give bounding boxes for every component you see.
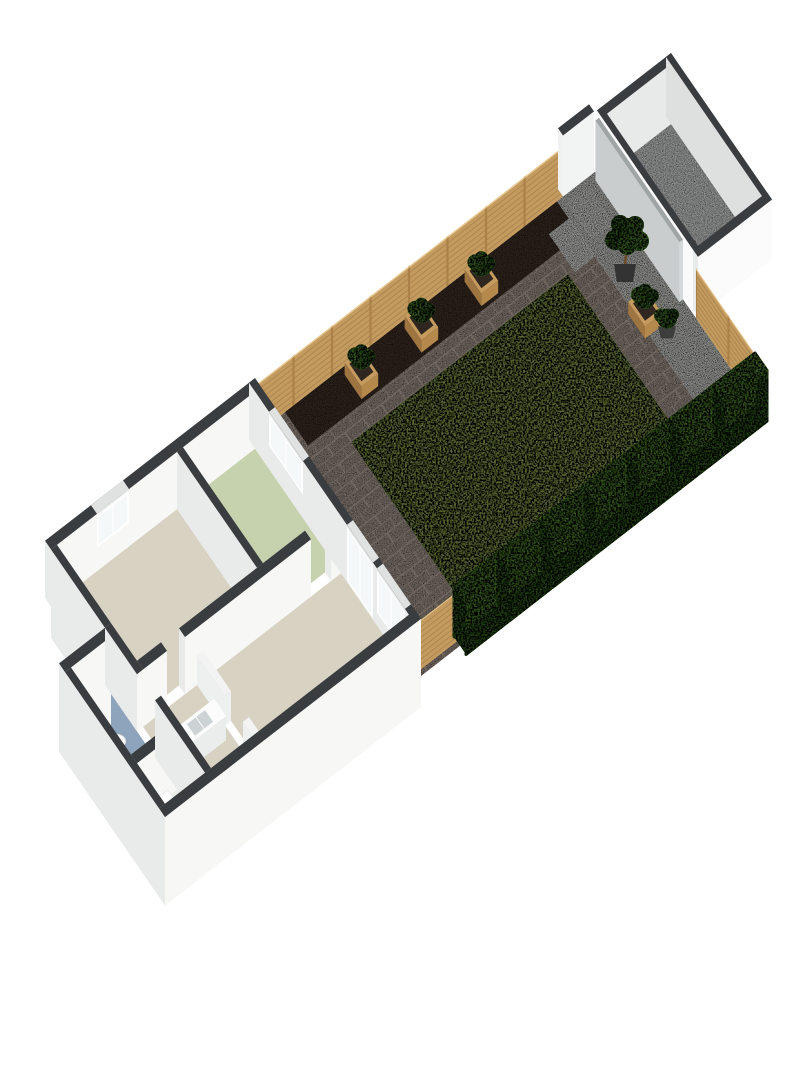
wall-end-face (179, 628, 185, 694)
fence-post (369, 295, 371, 347)
window-mullion (112, 505, 113, 533)
wall-end-face (59, 663, 65, 760)
fence-post (727, 314, 729, 367)
fence-post (331, 325, 333, 377)
window-mullion (285, 440, 286, 469)
wall-side-face (137, 670, 143, 732)
fence-post (292, 355, 294, 407)
wall-end-face (558, 128, 563, 196)
fence-post (446, 235, 448, 287)
fence-post (485, 206, 487, 258)
foliage-blob (474, 251, 488, 265)
foliage-blob (654, 308, 668, 322)
wall-end-face (159, 808, 165, 905)
foliage-blob (618, 237, 636, 255)
wall-side-face (679, 240, 683, 303)
foliage-blob (414, 298, 428, 312)
fence-post (696, 268, 697, 320)
foliage-blob (626, 216, 644, 234)
floorplan-3d-scene (0, 0, 810, 1080)
window-mullion (390, 592, 391, 631)
floorplan-render (0, 0, 810, 1080)
foliage (605, 215, 649, 255)
window-mullion (359, 547, 360, 598)
wall-end-face (45, 541, 51, 607)
foliage-blob (354, 344, 368, 358)
plant-pot (614, 264, 636, 282)
fence-post (523, 176, 525, 228)
foliage-blob (638, 284, 652, 298)
foliage-blob (667, 308, 679, 320)
